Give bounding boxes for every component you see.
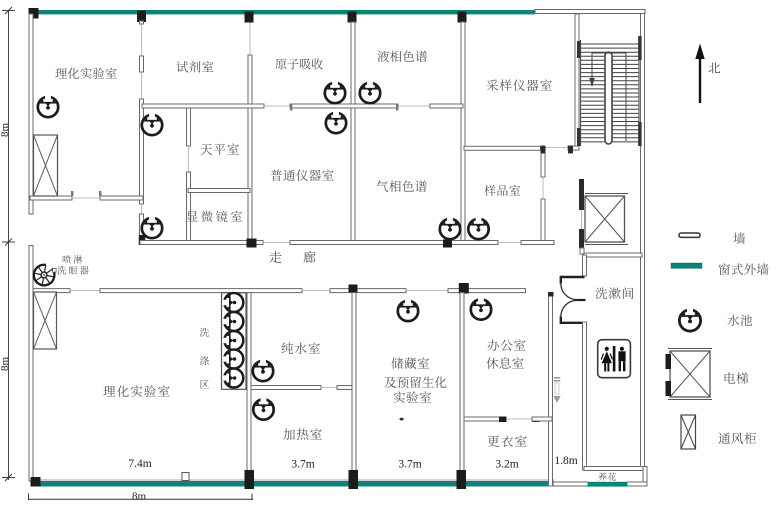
svg-text:3.2m: 3.2m — [495, 459, 518, 471]
svg-text:1.8m: 1.8m — [554, 455, 577, 467]
svg-text:7.4m: 7.4m — [128, 458, 151, 470]
svg-text:8m: 8m — [132, 491, 147, 501]
svg-text:3.7m: 3.7m — [291, 459, 314, 471]
svg-text:8m: 8m — [0, 357, 11, 372]
svg-text:8m: 8m — [0, 123, 11, 138]
svg-text:3.7m: 3.7m — [398, 459, 421, 471]
